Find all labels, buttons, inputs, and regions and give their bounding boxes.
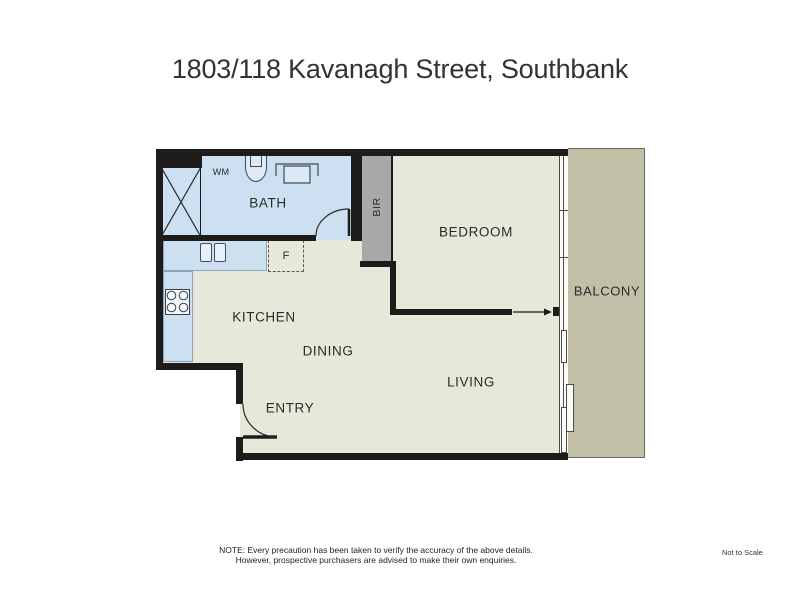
room-label-balcony: BALCONY — [574, 284, 640, 299]
disclaimer-note: NOTE: Every precaution has been taken to… — [219, 545, 533, 565]
sink-icon — [200, 243, 212, 262]
window-frame-tick — [559, 257, 568, 258]
washing-machine-label: WM — [213, 167, 230, 177]
wall-top — [156, 149, 568, 156]
wall-bottom — [236, 453, 568, 460]
disclaimer-line-1: NOTE: Every precaution has been taken to… — [219, 545, 533, 555]
wall-bottom-left — [156, 363, 243, 370]
fridge-space: F — [268, 240, 304, 272]
wall-bedroom-bottom — [390, 309, 512, 315]
balcony-area — [568, 148, 645, 458]
duct-x-icon — [161, 167, 201, 237]
room-label-bir: BIR — [371, 197, 383, 216]
cooktop-icon — [165, 289, 190, 315]
wall-entry-upper — [236, 363, 243, 404]
room-label-bedroom: BEDROOM — [439, 225, 513, 240]
room-label-kitchen: KITCHEN — [232, 310, 295, 325]
room-label-dining: DINING — [303, 344, 354, 359]
room-label-bath: BATH — [249, 196, 286, 211]
not-to-scale-label: Not to Scale — [722, 548, 763, 557]
wall-left — [156, 149, 163, 370]
disclaimer-line-2: However, prospective purchasers are advi… — [219, 555, 533, 565]
wall-below-bir — [390, 261, 396, 312]
wall-bath-bir — [351, 149, 362, 241]
sliding-door-panel — [566, 384, 574, 432]
wall-bath-bottom — [156, 235, 316, 241]
kitchen-bench-left — [163, 271, 193, 362]
fridge-label: F — [283, 250, 290, 262]
room-label-entry: ENTRY — [266, 401, 315, 416]
sink-icon — [214, 243, 226, 262]
window-frame-tick — [559, 210, 568, 211]
sliding-door-panel — [561, 407, 567, 453]
floor-plan: 1803/118 Kavanagh Street, Southbank F — [0, 0, 800, 600]
sliding-door-panel — [561, 330, 567, 363]
room-label-living: LIVING — [447, 375, 495, 390]
page-title: 1803/118 Kavanagh Street, Southbank — [0, 54, 800, 85]
